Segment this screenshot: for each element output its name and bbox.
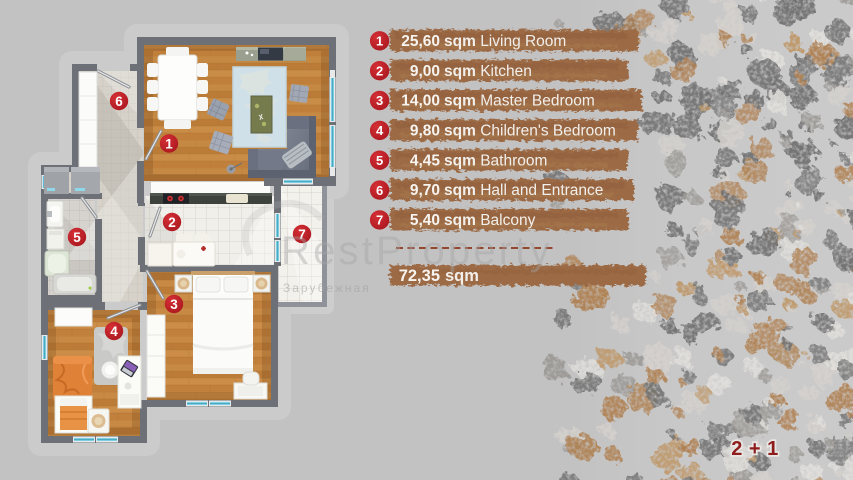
svg-text:6: 6 xyxy=(376,183,383,198)
svg-text:2: 2 xyxy=(168,215,176,230)
svg-text:2: 2 xyxy=(376,63,383,78)
svg-text:Зарубежная: Зарубежная xyxy=(283,281,371,295)
svg-text:sqm Living Room: sqm Living Room xyxy=(444,33,566,50)
svg-text:25,60: 25,60 xyxy=(401,33,440,50)
svg-text:5: 5 xyxy=(73,230,81,245)
svg-text:1: 1 xyxy=(165,136,173,151)
svg-text:1: 1 xyxy=(376,33,383,48)
svg-text:5,40: 5,40 xyxy=(410,212,440,229)
svg-text:sqm Children's Bedroom: sqm Children's Bedroom xyxy=(444,123,616,140)
svg-text:4,45: 4,45 xyxy=(410,152,441,169)
svg-text:4: 4 xyxy=(376,123,384,138)
svg-text:9,80: 9,80 xyxy=(410,123,440,140)
svg-text:4: 4 xyxy=(110,324,118,339)
svg-text:sqm Master Bedroom: sqm Master Bedroom xyxy=(444,93,595,110)
svg-text:5: 5 xyxy=(376,153,383,168)
svg-text:7: 7 xyxy=(376,213,383,228)
svg-text:sqm Bathroom: sqm Bathroom xyxy=(444,152,547,169)
svg-text:RestProperty: RestProperty xyxy=(281,229,553,273)
svg-text:3: 3 xyxy=(376,93,383,108)
svg-text:sqm Kitchen: sqm Kitchen xyxy=(444,63,532,80)
svg-text:3: 3 xyxy=(170,297,178,312)
svg-text:9,70: 9,70 xyxy=(410,182,440,199)
svg-text:2 + 1: 2 + 1 xyxy=(731,438,779,460)
svg-text:6: 6 xyxy=(115,94,123,109)
svg-text:sqm Balcony: sqm Balcony xyxy=(444,212,536,229)
svg-text:14,00: 14,00 xyxy=(401,93,440,110)
svg-text:9,00: 9,00 xyxy=(410,63,440,80)
svg-text:sqm Hall and Entrance: sqm Hall and Entrance xyxy=(444,182,603,199)
